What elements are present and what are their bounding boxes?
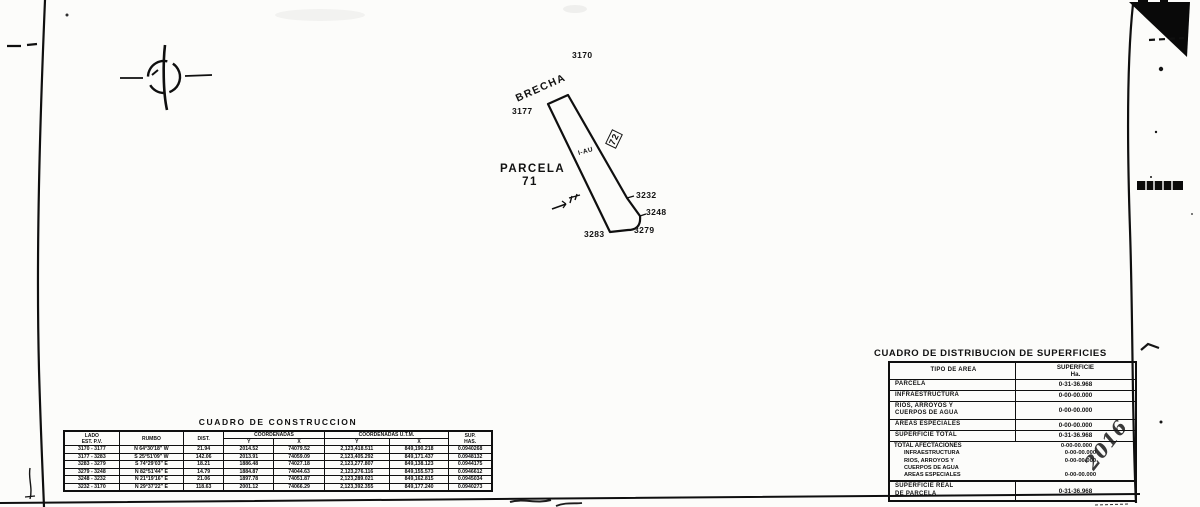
scanned-parcel-plan-page: BRECHA 3170 3177 3232 3248 3279 3283 I-A… [0,0,1200,507]
surface-row-infraestructura: INFRAESTRUCTURA 0-00-00.000 [890,390,1135,401]
header-utm-x: X [389,439,448,446]
smudge [275,9,365,21]
handwriting-stroke [510,500,551,502]
margin-dot [1155,131,1157,133]
annotation-marks [552,194,580,209]
surface-row-superficie-real: SUPERFICIE REAL DE PARCELA 0-31-36.968 [890,480,1135,500]
edge-mark [1160,0,1168,3]
surface-row-areas-especiales: AREAS ESPECIALES 0-00-00.000 [890,419,1135,430]
vertex-label-3170: 3170 [572,50,593,60]
left-border-line [38,0,45,507]
margin-dot [1191,213,1193,215]
table-row: 3232 - 3170N 29°37'22" E118.632001.12740… [64,483,492,491]
vertex-label-3283: 3283 [584,229,605,239]
margin-dot [1160,421,1163,424]
table-row: 3248 - 3232N 21°19'16" E21.061897.787405… [64,476,492,484]
vertex-label-3279: 3279 [634,225,655,235]
table-row: 3170 - 3177N 64°30'18" W21.942014.527407… [64,446,492,454]
header-coordenadas: COORDENADAS [224,431,324,439]
header-sup: SUP. HAS. [449,431,492,446]
surface-row-rios: RIOS, ARROYOS Y CUERPOS DE AGUA 0-00-00.… [890,401,1135,420]
folded-corner-artifact [1129,2,1190,57]
table-row: 3283 - 3279S 74°29'03" E18.211886.487402… [64,461,492,469]
handwriting-stroke [556,503,582,506]
surface-table: TIPO DE AREA SUPERFICIE Ha. PARCELA 0-31… [888,361,1137,502]
vertex-label-3232: 3232 [636,190,657,200]
header-superficie: SUPERFICIE Ha. [1016,363,1135,379]
construction-header-row: LADO EST. P.V. RUMBO DIST. COORDENADAS C… [64,431,492,439]
surface-table-title: CUADRO DE DISTRIBUCION DE SUPERFICIES [874,348,1136,359]
table-row: 3279 - 3248N 82°51'44" E14.791884.877404… [64,468,492,476]
check-scribble [1141,344,1159,350]
header-lado: LADO EST. P.V. [64,431,119,446]
left-margin-dashes [7,44,37,46]
scan-layer: BRECHA 3170 3177 3232 3248 3279 3283 I-A… [0,0,1200,507]
header-x: X [274,439,324,446]
smudge [563,5,587,13]
surface-row-parcela: PARCELA 0-31-36.968 [890,379,1135,390]
construction-table: LADO EST. P.V. RUMBO DIST. COORDENADAS C… [63,430,493,492]
barcode-artifact [1137,181,1183,190]
header-tipo-de-area: TIPO DE AREA [890,363,1016,379]
header-y: Y [224,439,274,446]
header-utm-y: Y [324,439,389,446]
bottom-right-dashes [1095,504,1130,505]
speck [66,14,69,17]
margin-dot [1159,67,1163,71]
table-row: 3177 - 3283S 25°51'09" W142.062013.91740… [64,453,492,461]
vertex-label-3248: 3248 [646,207,667,217]
construction-table-title: CUADRO DE CONSTRUCCION [63,417,493,427]
header-coordenadas-utm: COORDENADAS U.T.M. [324,431,449,439]
parcel-title-line1: PARCELA [500,163,560,176]
parcel-title-line2: 71 [500,176,560,189]
header-rumbo: RUMBO [119,431,183,446]
parcel-title: PARCELA 71 [500,163,560,189]
edge-mark [1138,0,1148,3]
vertex-label-3177: 3177 [512,106,533,116]
left-bottom-dash [25,496,35,497]
margin-dot [1150,176,1152,178]
header-dist: DIST. [184,431,224,446]
left-bottom-scribble [30,468,31,499]
surface-header-row: TIPO DE AREA SUPERFICIE Ha. [890,363,1135,379]
north-symbol-icon [120,45,212,110]
